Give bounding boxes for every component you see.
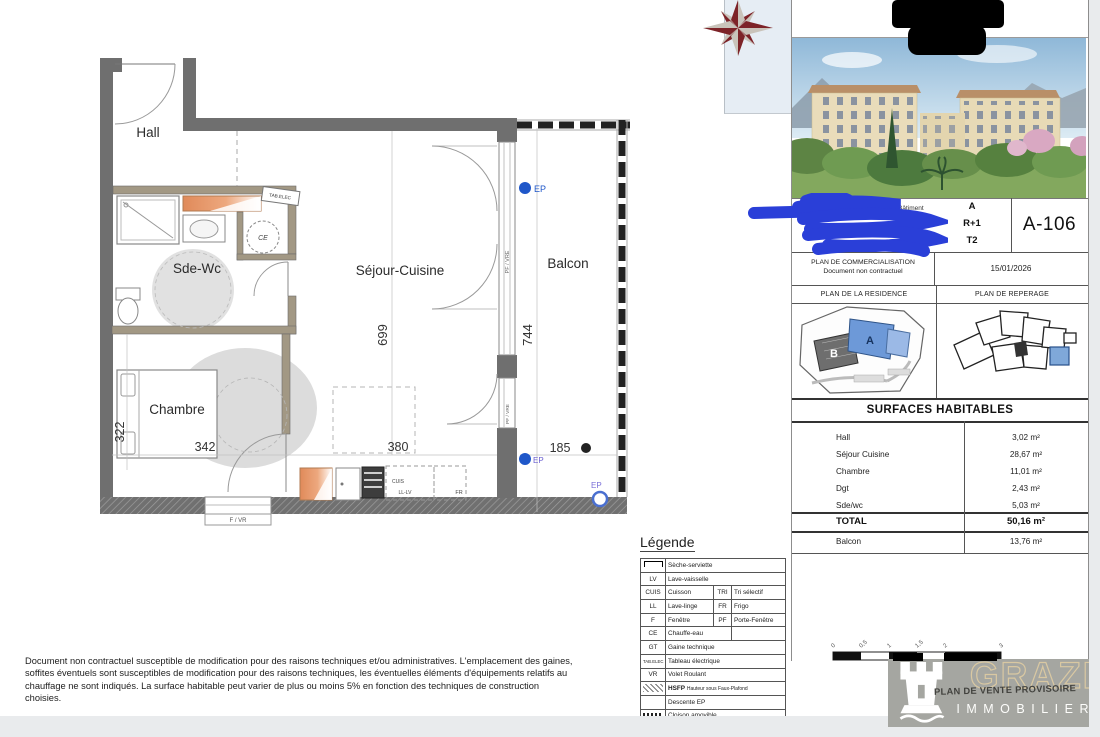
doc-title: PLAN DE COMMERCIALISATION	[792, 259, 934, 266]
floor-plan-drawing: PF / VRE PF / VRE F / VR	[0, 0, 700, 570]
surface-label: Dgt	[836, 484, 849, 493]
legend-label: Cuisson	[666, 586, 714, 600]
panel-divider	[792, 531, 1088, 533]
legend-row: TAB.ELEC Tableau électrique	[641, 654, 786, 668]
total-value: 50,16 m²	[964, 516, 1088, 527]
redaction-block-2	[908, 25, 986, 55]
surface-row-hall: Hall 3,02 m²	[792, 430, 1088, 447]
legend-label: Tableau électrique	[666, 654, 786, 668]
panel-divider	[936, 285, 937, 398]
balcon-value: 13,76 m²	[964, 537, 1088, 546]
legend-label: Frigo	[732, 600, 786, 614]
surface-value: 11,01 m²	[964, 467, 1088, 476]
doc-subtitle: Document non contractuel	[792, 268, 934, 275]
batiment-value: A	[940, 201, 1004, 212]
surfaces-total-row: TOTAL 50,16 m²	[792, 512, 1088, 531]
legend-block: Légende Sèche-serviette LV Lave-vaissell…	[640, 534, 790, 723]
lot-number: A-106	[1011, 198, 1088, 252]
legend-row: GT Gaine technique	[641, 641, 786, 655]
panel-divider	[792, 421, 1088, 423]
water-heater: CE	[247, 221, 279, 253]
floor-plan-page: PF / VRE PF / VRE F / VR	[0, 0, 1100, 737]
legend-row: Sèche-serviette	[641, 559, 786, 573]
agency-logo: GRAZI IMMOBILIER PLAN DE VENTE PROVISOIR…	[888, 659, 1100, 727]
legend-label: Gaine technique	[666, 641, 786, 655]
legend-abbr: F	[641, 613, 666, 627]
legend-row: VR Volet Roulant	[641, 668, 786, 682]
towel-radiator-bathroom	[183, 196, 261, 211]
surface-label: Hall	[836, 433, 850, 442]
legend-label: Chauffe-eau	[666, 627, 732, 641]
legend-abbr: LV	[641, 572, 666, 586]
washbasin	[183, 215, 225, 242]
room-label-sejour: Séjour-Cuisine	[356, 263, 445, 278]
legend-abbr: TAB.ELEC	[641, 654, 666, 668]
legend-abbr: HSFP	[668, 685, 685, 692]
balcony-windows: PF / VRE PF / VRE	[499, 142, 515, 428]
dim-744: 744	[520, 324, 535, 346]
legend-abbr: VR	[641, 668, 666, 682]
toilet	[116, 288, 140, 324]
scale-label: 0,5	[858, 639, 869, 649]
scale-label: 1	[886, 642, 893, 649]
legend-abbr: CUIS	[641, 586, 666, 600]
disclaimer-text: Document non contractuel susceptible de …	[25, 655, 573, 704]
svg-text:EP: EP	[533, 456, 544, 465]
surfaces-title: SURFACES HABITABLES	[792, 398, 1088, 421]
legend-label: Porte-Fenêtre	[732, 613, 786, 627]
scale-label: 0	[831, 642, 837, 649]
niveau-value: R+1	[940, 218, 1004, 229]
reperage-plan-header: PLAN DE REPERAGE	[936, 285, 1088, 303]
svg-text:EP: EP	[591, 481, 602, 490]
legend-row: LV Lave-vaisselle	[641, 572, 786, 586]
ep-marker-top: EP	[519, 182, 546, 194]
sdewc-door	[254, 262, 288, 296]
scale-label: 3	[998, 642, 1005, 649]
legend-row: Descente EP	[641, 695, 786, 709]
total-label: TOTAL	[836, 516, 867, 527]
legend-empty-cell	[641, 695, 666, 709]
doc-date: 15/01/2026	[934, 252, 1088, 285]
legend-label: Lave-linge	[666, 600, 714, 614]
legend-table: Sèche-serviette LV Lave-vaisselle CUIS C…	[640, 558, 786, 723]
panel-divider	[792, 285, 1088, 286]
entrance-door	[115, 64, 175, 124]
towel-radiator-symbol	[644, 561, 663, 567]
brand-subtitle: IMMOBILIER	[956, 702, 1095, 716]
surface-row-dgt: Dgt 2,43 m²	[792, 481, 1088, 498]
compass-rose-icon	[697, 0, 779, 58]
residence-plan-header: PLAN DE LA RESIDENCE	[792, 285, 936, 303]
legend-abbr: TRI	[714, 586, 732, 600]
svg-text:EP: EP	[534, 184, 546, 194]
legend-abbr: FR	[714, 600, 732, 614]
blue-scribble-annotation	[748, 193, 948, 259]
dim-dot	[581, 443, 591, 453]
legend-label: Tri sélectif	[732, 586, 786, 600]
window-label-pf-vre-1: PF / VRE	[505, 250, 511, 273]
panel-divider	[792, 398, 1088, 400]
redaction-block-1	[892, 0, 1004, 28]
room-label-chambre: Chambre	[149, 402, 205, 417]
redaction-bar-1	[893, 653, 923, 661]
balcony-railing	[517, 120, 630, 497]
dim-699: 699	[375, 324, 390, 346]
legend-row: LL Lave-linge FR Frigo	[641, 600, 786, 614]
legend-label: Volet Roulant	[666, 668, 786, 682]
legend-label: Descente EP	[666, 695, 786, 709]
legend-label: Lave-vaisselle	[666, 572, 786, 586]
balcony-door-swings	[432, 146, 497, 424]
legend-abbr: GT	[641, 641, 666, 655]
surface-label: Chambre	[836, 467, 870, 476]
surface-value: 5,03 m²	[964, 501, 1088, 510]
kitchen-units: CUIS LL-LV FR	[300, 466, 466, 500]
legend-abbr: CE	[641, 627, 666, 641]
dim-322: 322	[113, 422, 127, 443]
panel-divider	[792, 553, 1088, 554]
legend-label: Fenêtre	[666, 613, 714, 627]
legend-sublabel: Hauteur sous Faux-Plafond	[687, 686, 748, 692]
building-photo	[792, 37, 1088, 199]
dim-342: 342	[195, 440, 216, 454]
legend-row: CUIS Cuisson TRI Tri sélectif	[641, 586, 786, 600]
surface-value: 3,02 m²	[964, 433, 1088, 442]
room-label-sdewc: Sde-Wc	[173, 261, 221, 276]
window-label-f-vr: F / VR	[229, 518, 247, 524]
balcon-label: Balcon	[836, 537, 861, 546]
residence-label-b: B	[830, 348, 838, 360]
legend-abbr: PF	[714, 613, 732, 627]
room-label-balcon: Balcon	[547, 256, 588, 271]
legend-row: F Fenêtre PF Porte-Fenêtre	[641, 613, 786, 627]
residence-label-a: A	[866, 335, 874, 347]
surfaces-balcon-row: Balcon 13,76 m²	[792, 531, 1088, 553]
legend-title: Légende	[640, 534, 695, 552]
chambre-window: F / VR	[205, 497, 271, 525]
room-label-hall: Hall	[136, 125, 159, 140]
surface-value: 28,67 m²	[964, 450, 1088, 459]
ce-label: CE	[258, 235, 268, 242]
cuis-label: CUIS	[392, 479, 405, 485]
scale-label: 2	[942, 642, 949, 649]
legend-label: Sèche-serviette	[666, 559, 786, 573]
legend-row: HSFP Hauteur sous Faux-Plafond	[641, 682, 786, 696]
shower	[117, 196, 179, 244]
fr-label: FR	[455, 490, 462, 496]
scale-label: 1,5	[914, 639, 925, 649]
legend-row: CE Chauffe-eau	[641, 627, 786, 641]
surface-row-chambre: Chambre 11,01 m²	[792, 464, 1088, 481]
ep-descent-marker: EP	[591, 481, 607, 506]
panel-divider	[792, 303, 1088, 304]
panel-divider	[964, 421, 965, 553]
ll-lv-label: LL-LV	[399, 490, 413, 496]
panel-divider	[1011, 198, 1012, 252]
surface-row-sejour: Séjour Cuisine 28,67 m²	[792, 447, 1088, 464]
legend-label: HSFP Hauteur sous Faux-Plafond	[666, 682, 786, 696]
window-label-pf-vre-2: PF / VRE	[505, 404, 511, 424]
page-margin-right	[1089, 0, 1100, 737]
legend-empty-cell	[732, 627, 786, 641]
dim-380: 380	[388, 440, 409, 454]
dim-185: 185	[550, 441, 571, 455]
residence-site-plan: B A	[792, 303, 936, 398]
hatch-symbol	[643, 684, 663, 692]
reperage-floor-plan	[936, 303, 1088, 398]
surface-label: Sde/wc	[836, 501, 863, 510]
type-value: T2	[940, 235, 1004, 246]
panel-divider	[792, 512, 1088, 514]
legend-abbr: LL	[641, 600, 666, 614]
info-panel: Bâtiment A Niveau R+1 Type T2 A-106 PLAN…	[791, 0, 1089, 661]
redaction-bar-2	[944, 653, 997, 661]
surface-value: 2,43 m²	[964, 484, 1088, 493]
surface-label: Séjour Cuisine	[836, 450, 889, 459]
